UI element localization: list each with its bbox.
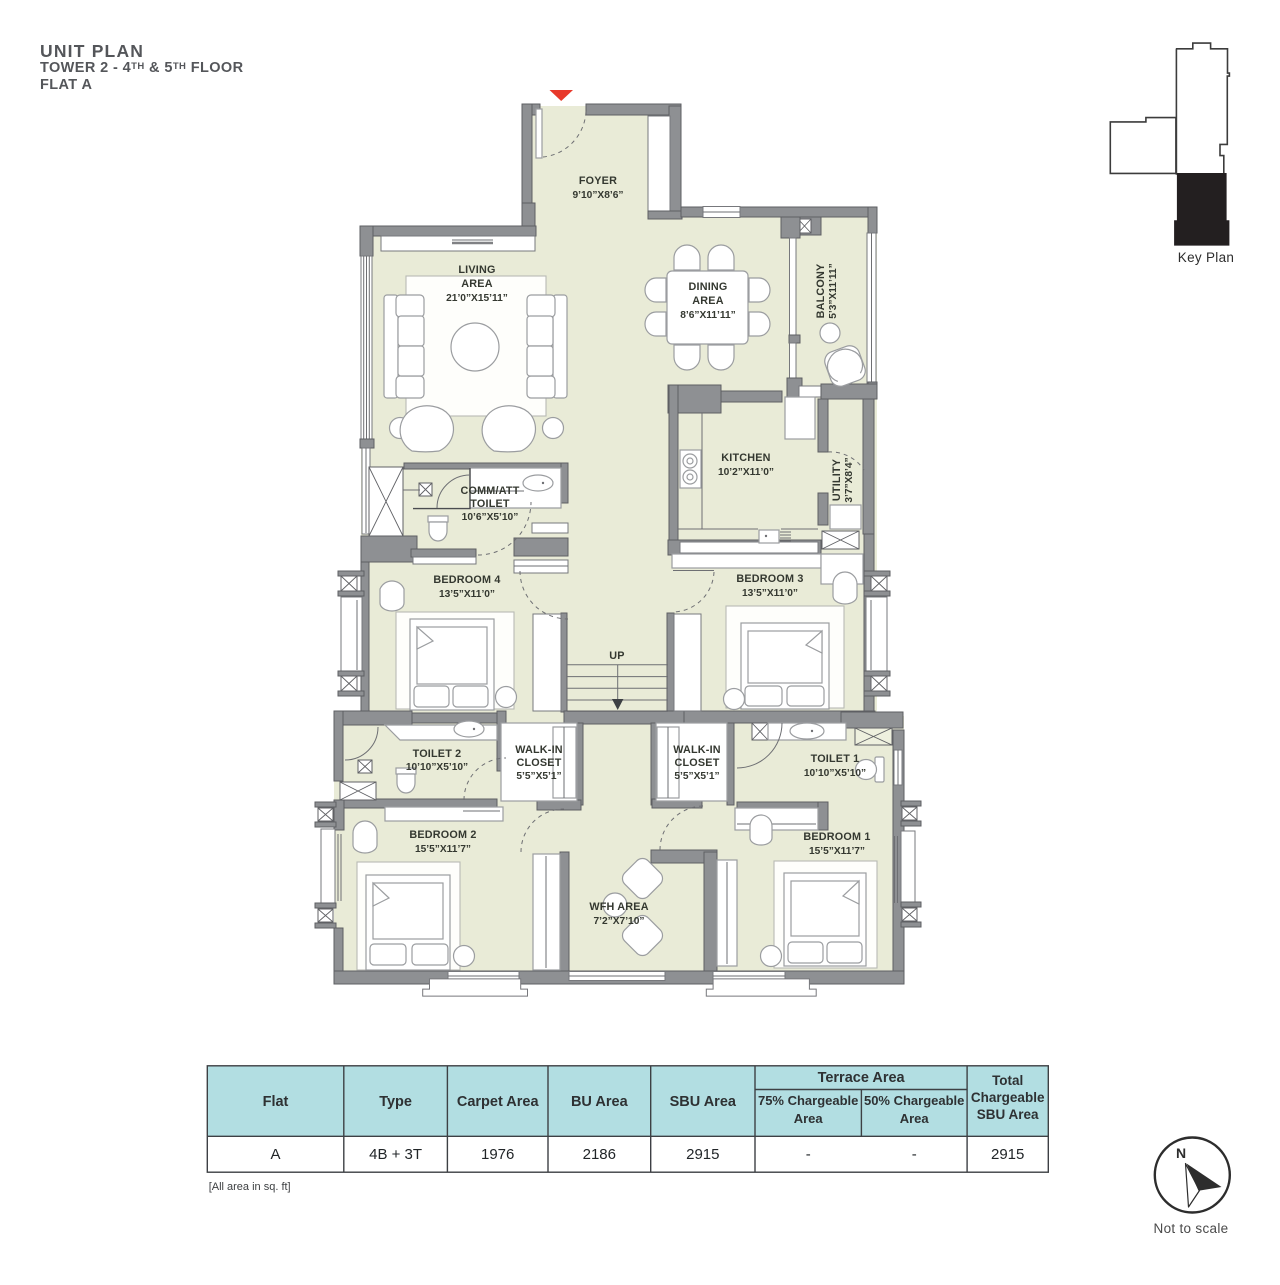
- svg-text:13’5”X11’0”: 13’5”X11’0”: [742, 588, 798, 599]
- svg-text:SBU Area: SBU Area: [670, 1094, 737, 1110]
- svg-text:CLOSET: CLOSET: [517, 757, 562, 769]
- svg-text:CLOSET: CLOSET: [675, 757, 720, 769]
- svg-text:1976: 1976: [481, 1146, 514, 1163]
- svg-text:DINING: DINING: [689, 281, 728, 293]
- svg-text:50% Chargeable: 50% Chargeable: [864, 1093, 964, 1108]
- svg-text:FLAT A: FLAT A: [40, 77, 92, 93]
- svg-text:WALK-IN: WALK-IN: [673, 744, 721, 756]
- svg-text:Flat: Flat: [263, 1094, 289, 1110]
- svg-text:Type: Type: [379, 1094, 412, 1110]
- svg-text:5’5”X5’1”: 5’5”X5’1”: [516, 771, 561, 782]
- svg-text:10’2”X11’0”: 10’2”X11’0”: [718, 467, 774, 478]
- svg-text:BU Area: BU Area: [571, 1094, 629, 1110]
- svg-text:BEDROOM 1: BEDROOM 1: [803, 831, 870, 843]
- svg-text:8’6”X11’11”: 8’6”X11’11”: [680, 310, 736, 321]
- svg-text:A: A: [270, 1146, 280, 1163]
- svg-text:75% Chargeable: 75% Chargeable: [758, 1093, 858, 1108]
- svg-text:BALCONY: BALCONY: [815, 263, 827, 318]
- svg-text:BEDROOM 3: BEDROOM 3: [736, 573, 803, 585]
- svg-text:COMM/ATT: COMM/ATT: [461, 485, 520, 497]
- svg-text:KITCHEN: KITCHEN: [721, 452, 770, 464]
- svg-text:Area: Area: [794, 1111, 824, 1126]
- svg-text:TOILET 1: TOILET 1: [811, 753, 860, 765]
- svg-text:AREA: AREA: [461, 278, 492, 290]
- svg-text:AREA: AREA: [692, 295, 723, 307]
- svg-text:UP: UP: [609, 650, 624, 662]
- svg-text:WFH AREA: WFH AREA: [589, 901, 648, 913]
- svg-text:13’5”X11’0”: 13’5”X11’0”: [439, 589, 495, 600]
- svg-text:10’10”X5’10”: 10’10”X5’10”: [406, 762, 468, 773]
- svg-text:-: -: [806, 1146, 811, 1163]
- svg-text:N: N: [1176, 1145, 1186, 1161]
- svg-text:2186: 2186: [583, 1146, 616, 1163]
- svg-text:2915: 2915: [991, 1146, 1024, 1163]
- svg-text:LIVING: LIVING: [458, 264, 495, 276]
- svg-text:Terrace Area: Terrace Area: [818, 1070, 906, 1086]
- svg-text:Carpet Area: Carpet Area: [457, 1094, 540, 1110]
- svg-text:BEDROOM 2: BEDROOM 2: [409, 829, 476, 841]
- svg-text:9’10”X8’6”: 9’10”X8’6”: [573, 190, 624, 201]
- svg-text:Key Plan: Key Plan: [1178, 250, 1234, 265]
- svg-text:[All area in sq. ft]: [All area in sq. ft]: [209, 1181, 291, 1193]
- svg-text:5’5”X5’1”: 5’5”X5’1”: [674, 771, 719, 782]
- svg-text:BEDROOM 4: BEDROOM 4: [433, 574, 500, 586]
- svg-text:10’10”X5’10”: 10’10”X5’10”: [804, 768, 866, 779]
- svg-text:Total: Total: [992, 1073, 1023, 1088]
- svg-text:21’0”X15’11”: 21’0”X15’11”: [446, 293, 508, 304]
- svg-text:10’6”X5’10”: 10’6”X5’10”: [462, 512, 519, 523]
- svg-text:Chargeable: Chargeable: [971, 1090, 1045, 1105]
- svg-text:UTILITY: UTILITY: [831, 458, 843, 501]
- svg-text:WALK-IN: WALK-IN: [515, 744, 563, 756]
- svg-text:UNIT PLAN: UNIT PLAN: [40, 41, 144, 61]
- svg-text:Area: Area: [900, 1111, 930, 1126]
- svg-text:SBU Area: SBU Area: [977, 1107, 1039, 1122]
- svg-text:5’3”X11’11”: 5’3”X11’11”: [828, 263, 839, 319]
- svg-text:2915: 2915: [686, 1146, 719, 1163]
- svg-text:7’2”X7’10”: 7’2”X7’10”: [594, 916, 645, 927]
- svg-text:-: -: [912, 1146, 917, 1163]
- svg-text:15’5”X11’7”: 15’5”X11’7”: [809, 846, 865, 857]
- svg-text:FOYER: FOYER: [579, 175, 617, 187]
- svg-text:Not to scale: Not to scale: [1154, 1221, 1229, 1236]
- svg-text:TOILET 2: TOILET 2: [413, 748, 462, 760]
- svg-text:TOILET: TOILET: [470, 498, 510, 510]
- svg-text:15’5”X11’7”: 15’5”X11’7”: [415, 844, 471, 855]
- svg-text:3’7”X8’4”: 3’7”X8’4”: [844, 457, 855, 502]
- svg-text:4B + 3T: 4B + 3T: [369, 1146, 422, 1163]
